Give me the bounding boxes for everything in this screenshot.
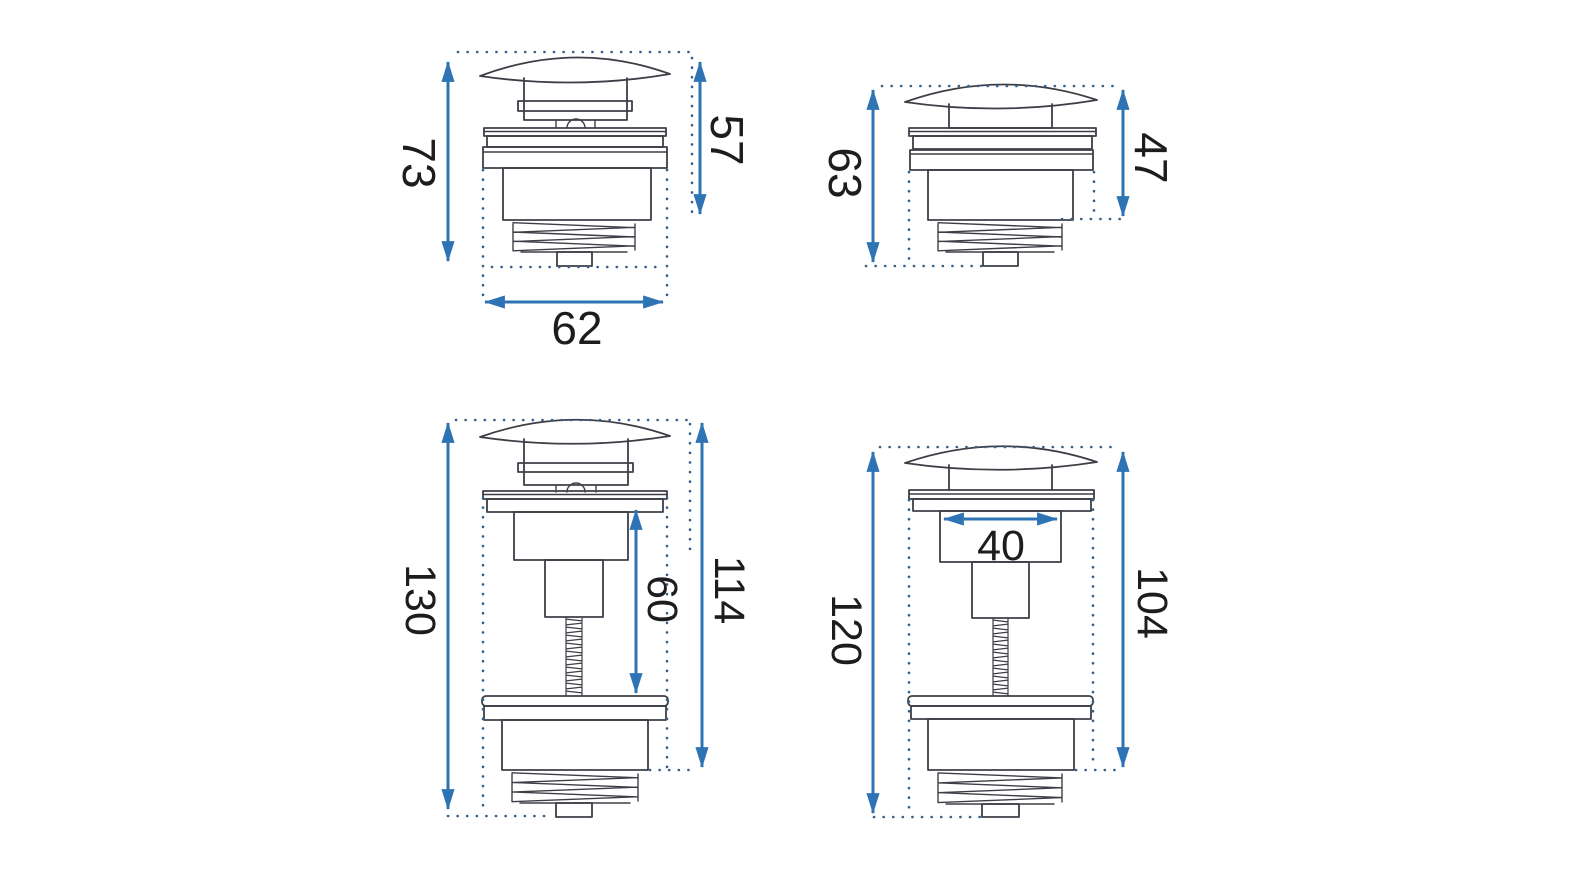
cap-dome bbox=[480, 57, 670, 82]
dim-label-left: 120 bbox=[822, 594, 870, 666]
dim-label-bottom: 62 bbox=[551, 302, 602, 354]
dimension-bottom: 62 bbox=[485, 302, 663, 354]
threaded-rod bbox=[566, 617, 582, 696]
extension-lines bbox=[458, 52, 692, 298]
cap-collar bbox=[518, 101, 632, 111]
thread-section bbox=[938, 223, 1062, 252]
flange-mid-ring bbox=[913, 499, 1091, 511]
cap-dome bbox=[905, 446, 1097, 470]
adjuster-block bbox=[545, 560, 603, 617]
bottom-stub bbox=[556, 803, 592, 817]
figure-bottom-right: 120 40 104 bbox=[822, 446, 1176, 817]
flange-base-ring bbox=[483, 147, 667, 168]
valve-drawing bbox=[905, 84, 1097, 266]
figure-bottom-left: 130 60 114 bbox=[396, 420, 753, 817]
cap-cylinder bbox=[524, 78, 627, 120]
dim-label-right: 57 bbox=[701, 114, 753, 165]
dimension-left: 73 bbox=[393, 62, 448, 261]
lower-body bbox=[928, 719, 1074, 770]
dim-label-right: 114 bbox=[705, 556, 753, 625]
thread-section bbox=[938, 773, 1062, 804]
lower-flange-ring bbox=[484, 706, 666, 720]
dimension-left: 63 bbox=[819, 90, 873, 262]
dimension-right: 47 bbox=[1123, 90, 1177, 216]
bottom-stub bbox=[983, 252, 1018, 266]
drain-valve-dimension-diagram: 73 57 62 bbox=[0, 0, 1572, 877]
flange-mid-ring bbox=[487, 136, 663, 147]
dimension-left: 130 bbox=[396, 423, 448, 809]
dim-label-left: 130 bbox=[396, 564, 444, 636]
cap-collar bbox=[518, 463, 633, 472]
valve-body bbox=[503, 168, 651, 220]
dimension-right: 104 bbox=[1123, 452, 1176, 767]
lower-flange-ring bbox=[911, 706, 1091, 719]
cap-dome bbox=[480, 420, 670, 444]
cap-cylinder bbox=[524, 439, 628, 485]
adjuster-block bbox=[972, 562, 1029, 618]
lower-flange bbox=[482, 696, 668, 706]
technical-drawing-page: 73 57 62 bbox=[0, 0, 1572, 877]
extension-lines bbox=[874, 447, 1121, 817]
lower-flange bbox=[908, 696, 1093, 706]
bottom-stub bbox=[557, 252, 592, 266]
valve-body bbox=[928, 170, 1073, 220]
dimension-middle: 60 bbox=[636, 510, 686, 693]
dim-label-right: 47 bbox=[1125, 132, 1177, 183]
upper-body bbox=[514, 512, 628, 560]
dimension-left: 120 bbox=[822, 452, 873, 813]
dim-label-right: 104 bbox=[1128, 567, 1176, 639]
valve-drawing bbox=[905, 446, 1097, 817]
lower-body bbox=[502, 720, 648, 770]
valve-drawing bbox=[480, 57, 670, 266]
cap-dome bbox=[905, 84, 1097, 108]
figure-top-right: 63 47 bbox=[819, 84, 1177, 266]
thread-section bbox=[513, 223, 635, 252]
dim-label-middle: 60 bbox=[638, 575, 686, 623]
figure-top-left: 73 57 62 bbox=[393, 52, 753, 354]
dim-label-left: 73 bbox=[393, 137, 445, 188]
dim-label-left: 63 bbox=[819, 147, 871, 198]
thread-section bbox=[512, 773, 638, 803]
dim-label-inner-width: 40 bbox=[977, 522, 1025, 570]
flange-mid-ring bbox=[913, 136, 1092, 149]
threaded-rod bbox=[993, 618, 1008, 696]
dimension-right: 114 bbox=[702, 423, 753, 767]
bottom-stub bbox=[982, 804, 1019, 817]
flange-base-ring bbox=[910, 150, 1093, 170]
dimension-right: 57 bbox=[700, 62, 753, 214]
